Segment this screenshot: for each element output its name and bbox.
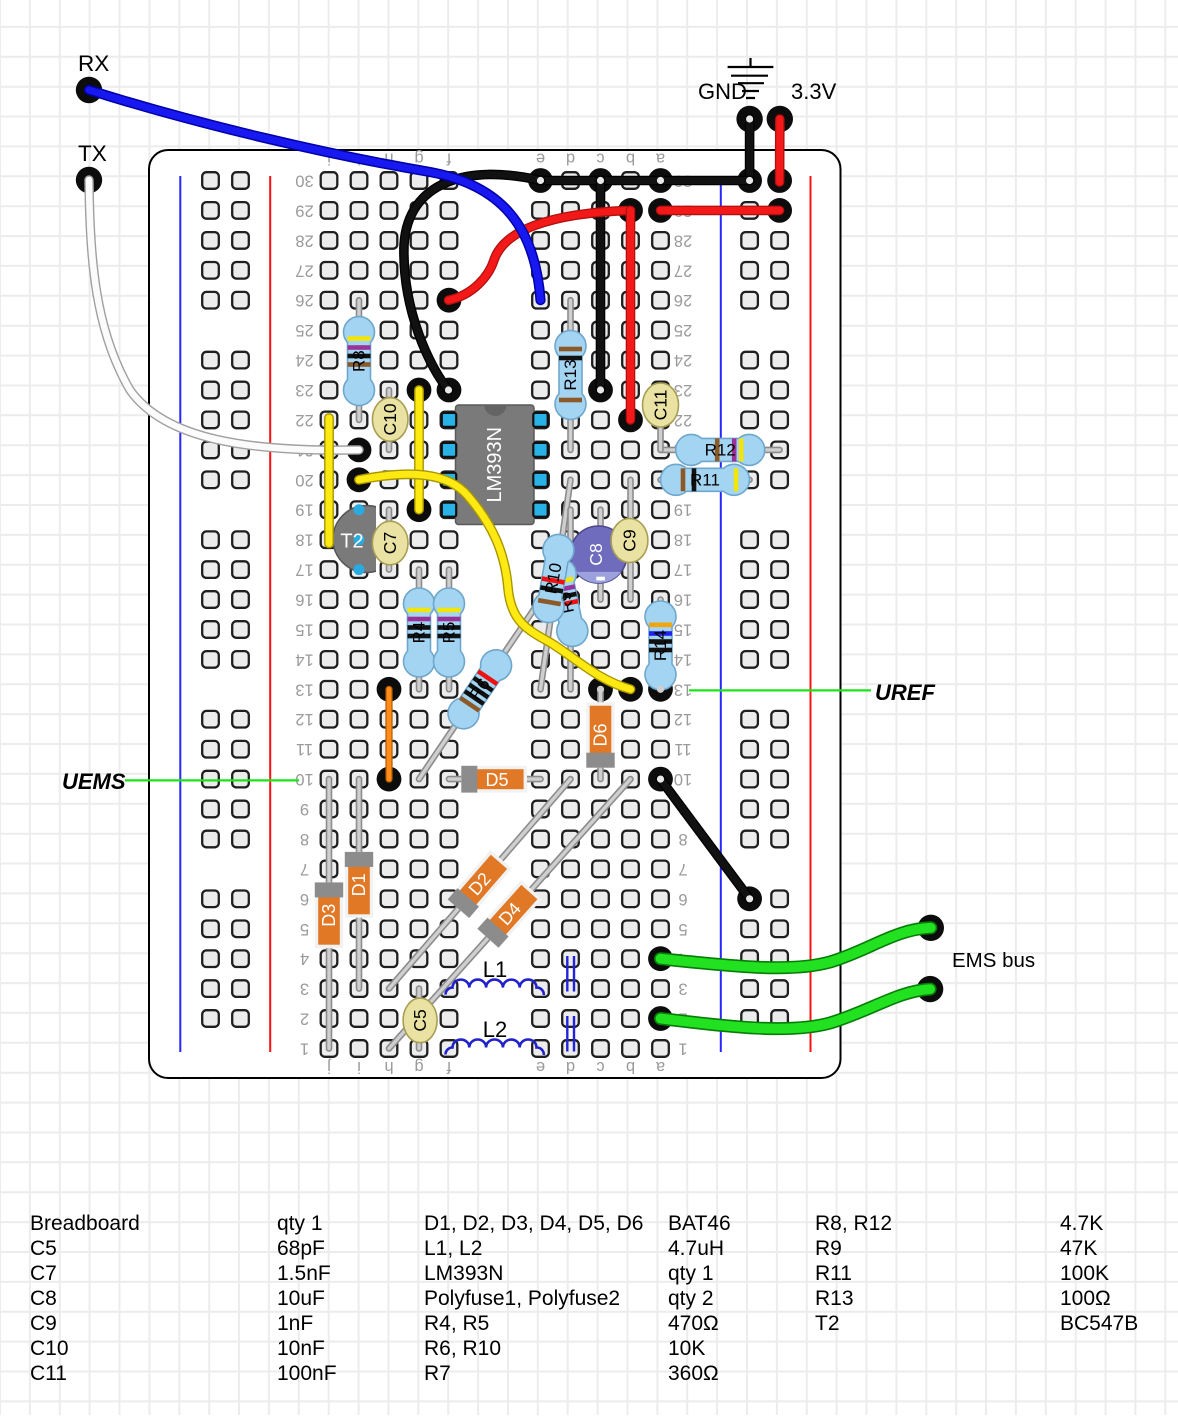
svg-text:3.3V: 3.3V [791, 79, 837, 104]
svg-text:4.7uH: 4.7uH [668, 1237, 724, 1260]
svg-text:C8: C8 [30, 1287, 57, 1310]
svg-text:L2: L2 [483, 1017, 507, 1042]
svg-text:R8: R8 [350, 350, 369, 372]
svg-text:10K: 10K [668, 1337, 705, 1360]
svg-text:8: 8 [300, 830, 309, 848]
svg-text:d: d [566, 1058, 575, 1076]
svg-text:R11: R11 [815, 1262, 852, 1285]
svg-text:c: c [596, 150, 604, 168]
svg-text:UEMS: UEMS [62, 769, 126, 794]
svg-text:3: 3 [300, 980, 309, 998]
svg-text:26: 26 [674, 291, 692, 309]
svg-text:9: 9 [300, 800, 309, 818]
svg-text:TX: TX [78, 141, 107, 166]
svg-text:C7: C7 [380, 532, 400, 554]
svg-text:100K: 100K [1060, 1262, 1109, 1285]
svg-text:19: 19 [295, 501, 313, 519]
svg-text:R9: R9 [815, 1237, 842, 1260]
svg-text:26: 26 [295, 291, 313, 309]
svg-text:68pF: 68pF [277, 1237, 325, 1260]
svg-text:C5: C5 [410, 1009, 430, 1031]
svg-text:14: 14 [295, 650, 313, 668]
svg-text:BAT46: BAT46 [668, 1212, 731, 1235]
svg-text:f: f [446, 150, 451, 168]
svg-text:R7: R7 [424, 1362, 451, 1385]
svg-text:100Ω: 100Ω [1060, 1287, 1111, 1310]
svg-text:23: 23 [295, 381, 313, 399]
svg-text:27: 27 [674, 261, 692, 279]
svg-text:R11: R11 [690, 470, 720, 489]
svg-text:18: 18 [674, 531, 692, 549]
svg-text:EMS bus: EMS bus [952, 949, 1035, 972]
svg-text:25: 25 [674, 321, 692, 339]
svg-text:1nF: 1nF [277, 1312, 313, 1335]
svg-text:19: 19 [674, 501, 692, 519]
svg-text:C5: C5 [30, 1237, 57, 1260]
svg-text:14: 14 [674, 650, 692, 668]
svg-text:b: b [626, 1058, 635, 1076]
svg-text:8: 8 [678, 830, 687, 848]
svg-text:C11: C11 [30, 1362, 67, 1385]
svg-text:LM393N: LM393N [424, 1262, 503, 1285]
svg-text:C10: C10 [380, 403, 400, 435]
svg-text:e: e [536, 1058, 545, 1076]
svg-text:7: 7 [678, 860, 687, 878]
svg-text:d: d [566, 150, 575, 168]
svg-text:28: 28 [295, 231, 313, 249]
svg-text:T2: T2 [340, 531, 363, 553]
svg-text:47K: 47K [1060, 1237, 1097, 1260]
svg-text:UREF: UREF [875, 680, 935, 705]
svg-text:10uF: 10uF [277, 1287, 325, 1310]
svg-text:R13: R13 [561, 359, 580, 390]
svg-text:R5: R5 [440, 622, 459, 644]
svg-text:11: 11 [674, 740, 691, 758]
svg-text:Polyfuse1, Polyfuse2: Polyfuse1, Polyfuse2 [424, 1287, 620, 1310]
svg-text:20: 20 [295, 471, 313, 489]
svg-text:27: 27 [295, 261, 313, 279]
svg-text:D6: D6 [591, 723, 611, 746]
svg-text:j: j [327, 1058, 332, 1076]
svg-text:C10: C10 [30, 1337, 69, 1360]
svg-text:10: 10 [295, 770, 313, 788]
svg-text:R4, R5: R4, R5 [424, 1312, 489, 1335]
svg-text:RX: RX [78, 51, 109, 76]
svg-text:1: 1 [300, 1039, 309, 1057]
svg-text:4.7K: 4.7K [1060, 1212, 1103, 1235]
svg-text:C7: C7 [30, 1262, 57, 1285]
svg-text:470Ω: 470Ω [668, 1312, 719, 1335]
svg-text:12: 12 [674, 710, 692, 728]
svg-text:qty 1: qty 1 [277, 1212, 323, 1235]
svg-text:13: 13 [295, 680, 313, 698]
svg-text:R13: R13 [815, 1287, 854, 1310]
svg-text:1: 1 [678, 1039, 687, 1057]
svg-text:C8: C8 [586, 543, 606, 565]
svg-text:D3: D3 [319, 904, 339, 927]
svg-text:11: 11 [296, 740, 313, 758]
svg-text:5: 5 [300, 920, 309, 938]
svg-text:30: 30 [295, 172, 313, 190]
svg-text:12: 12 [295, 710, 313, 728]
svg-text:5: 5 [678, 920, 687, 938]
svg-text:28: 28 [674, 231, 692, 249]
svg-text:g: g [414, 1058, 423, 1076]
svg-text:R8, R12: R8, R12 [815, 1212, 892, 1235]
svg-text:16: 16 [295, 591, 313, 609]
svg-text:3: 3 [678, 980, 687, 998]
svg-text:17: 17 [674, 561, 692, 579]
svg-text:15: 15 [674, 620, 692, 638]
svg-text:qty 2: qty 2 [668, 1287, 714, 1310]
svg-text:16: 16 [674, 591, 692, 609]
svg-text:C9: C9 [620, 529, 640, 551]
svg-text:7: 7 [300, 860, 309, 878]
svg-text:L1, L2: L1, L2 [424, 1237, 482, 1260]
svg-text:T2: T2 [815, 1312, 840, 1335]
svg-text:R6, R10: R6, R10 [424, 1337, 501, 1360]
svg-text:17: 17 [295, 561, 313, 579]
svg-text:b: b [626, 150, 635, 168]
svg-text:100nF: 100nF [277, 1362, 337, 1385]
svg-text:Breadboard: Breadboard [30, 1212, 140, 1235]
svg-text:10nF: 10nF [277, 1337, 325, 1360]
svg-text:4: 4 [300, 950, 309, 968]
svg-text:15: 15 [295, 620, 313, 638]
svg-text:R14: R14 [651, 630, 670, 661]
svg-text:6: 6 [300, 890, 309, 908]
svg-text:h: h [384, 1058, 393, 1076]
svg-text:i: i [357, 1058, 361, 1076]
svg-text:a: a [655, 150, 665, 168]
svg-text:2: 2 [300, 1010, 309, 1028]
svg-text:c: c [596, 1058, 604, 1076]
svg-text:C9: C9 [30, 1312, 57, 1335]
svg-text:6: 6 [678, 890, 687, 908]
svg-text:10: 10 [674, 770, 692, 788]
svg-text:C11: C11 [651, 390, 671, 421]
svg-text:24: 24 [674, 351, 692, 369]
svg-text:D1, D2, D3, D4, D5, D6: D1, D2, D3, D4, D5, D6 [424, 1212, 643, 1235]
svg-text:24: 24 [295, 351, 313, 369]
svg-text:a: a [655, 1058, 665, 1076]
svg-text:f: f [446, 1058, 451, 1076]
svg-text:R4: R4 [410, 622, 429, 644]
svg-text:qty 1: qty 1 [668, 1262, 714, 1285]
svg-text:LM393N: LM393N [484, 427, 506, 503]
svg-text:e: e [536, 150, 545, 168]
svg-text:22: 22 [295, 411, 313, 429]
svg-text:25: 25 [295, 321, 313, 339]
svg-text:L1: L1 [483, 957, 507, 982]
svg-text:360Ω: 360Ω [668, 1362, 719, 1385]
svg-text:18: 18 [295, 531, 313, 549]
svg-text:D5: D5 [485, 770, 508, 790]
svg-text:BC547B: BC547B [1060, 1312, 1138, 1335]
svg-text:1.5nF: 1.5nF [277, 1262, 331, 1285]
svg-text:R12: R12 [705, 440, 736, 459]
svg-text:D1: D1 [349, 873, 369, 896]
svg-text:29: 29 [295, 201, 313, 219]
